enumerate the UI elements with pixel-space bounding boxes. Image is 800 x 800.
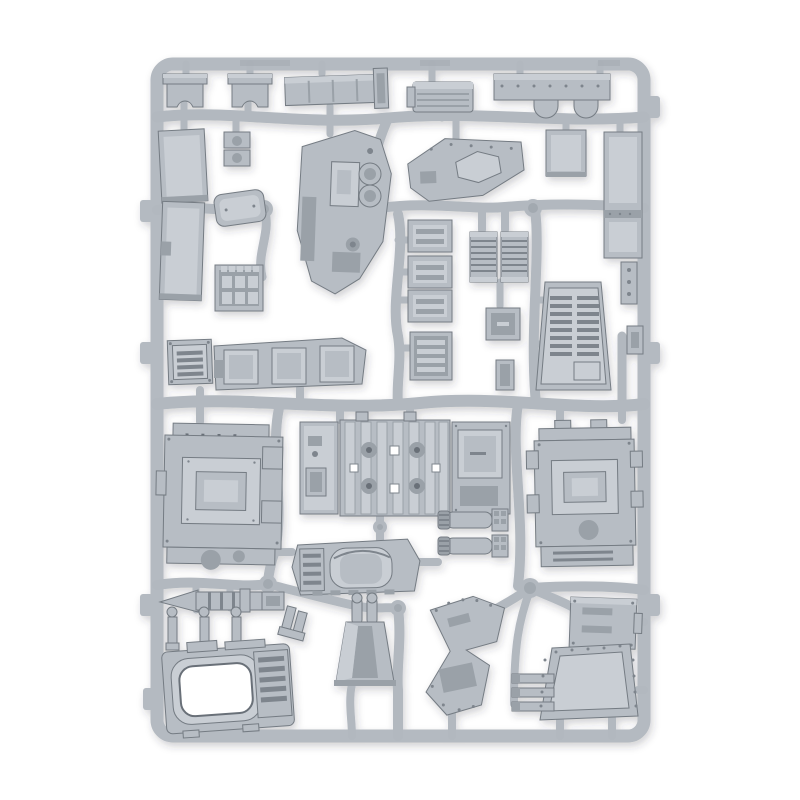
stacked-vents	[408, 220, 452, 322]
chevron-armour	[425, 594, 505, 718]
glacis-plate	[512, 644, 638, 720]
left-hatch-panel	[155, 423, 284, 571]
vent-box	[410, 332, 452, 380]
sprue-svg	[0, 0, 800, 800]
missile-barrel	[160, 589, 284, 612]
exhaust-pipes	[438, 509, 508, 557]
hatch-box	[486, 308, 520, 340]
capsule-panel	[213, 189, 267, 228]
ammo-crate	[215, 265, 263, 311]
left-panel-lower	[159, 201, 204, 300]
right-tall-panel	[604, 132, 642, 258]
hull-side-piece	[295, 129, 393, 296]
track-guard	[214, 338, 366, 390]
small-bracket-bottom	[278, 605, 311, 641]
linkage-pin-1	[166, 607, 179, 650]
right-small-bracket	[627, 326, 643, 354]
narrow-door-panel	[300, 422, 338, 514]
right-strip	[621, 262, 637, 304]
cab-roof	[292, 539, 421, 596]
rear-plate	[569, 597, 643, 649]
side-skirt-panel	[284, 68, 388, 112]
ribbed-roof-panel	[340, 412, 450, 516]
small-tab-part	[496, 360, 514, 390]
right-hatch-panel	[526, 419, 645, 567]
door-panel	[452, 422, 510, 514]
grille-hatch	[167, 339, 213, 385]
left-panel-upper	[158, 129, 208, 203]
photo-stage	[0, 0, 800, 800]
small-rect-panel	[546, 130, 586, 177]
muffler	[407, 82, 473, 112]
top-rail	[494, 74, 610, 118]
radiator-pair	[470, 232, 528, 282]
cab-frame	[161, 635, 295, 739]
wing-plate	[407, 136, 525, 202]
small-bracket-top-left	[224, 132, 250, 166]
sprue-photo	[0, 0, 800, 800]
engine-deck	[536, 282, 611, 390]
